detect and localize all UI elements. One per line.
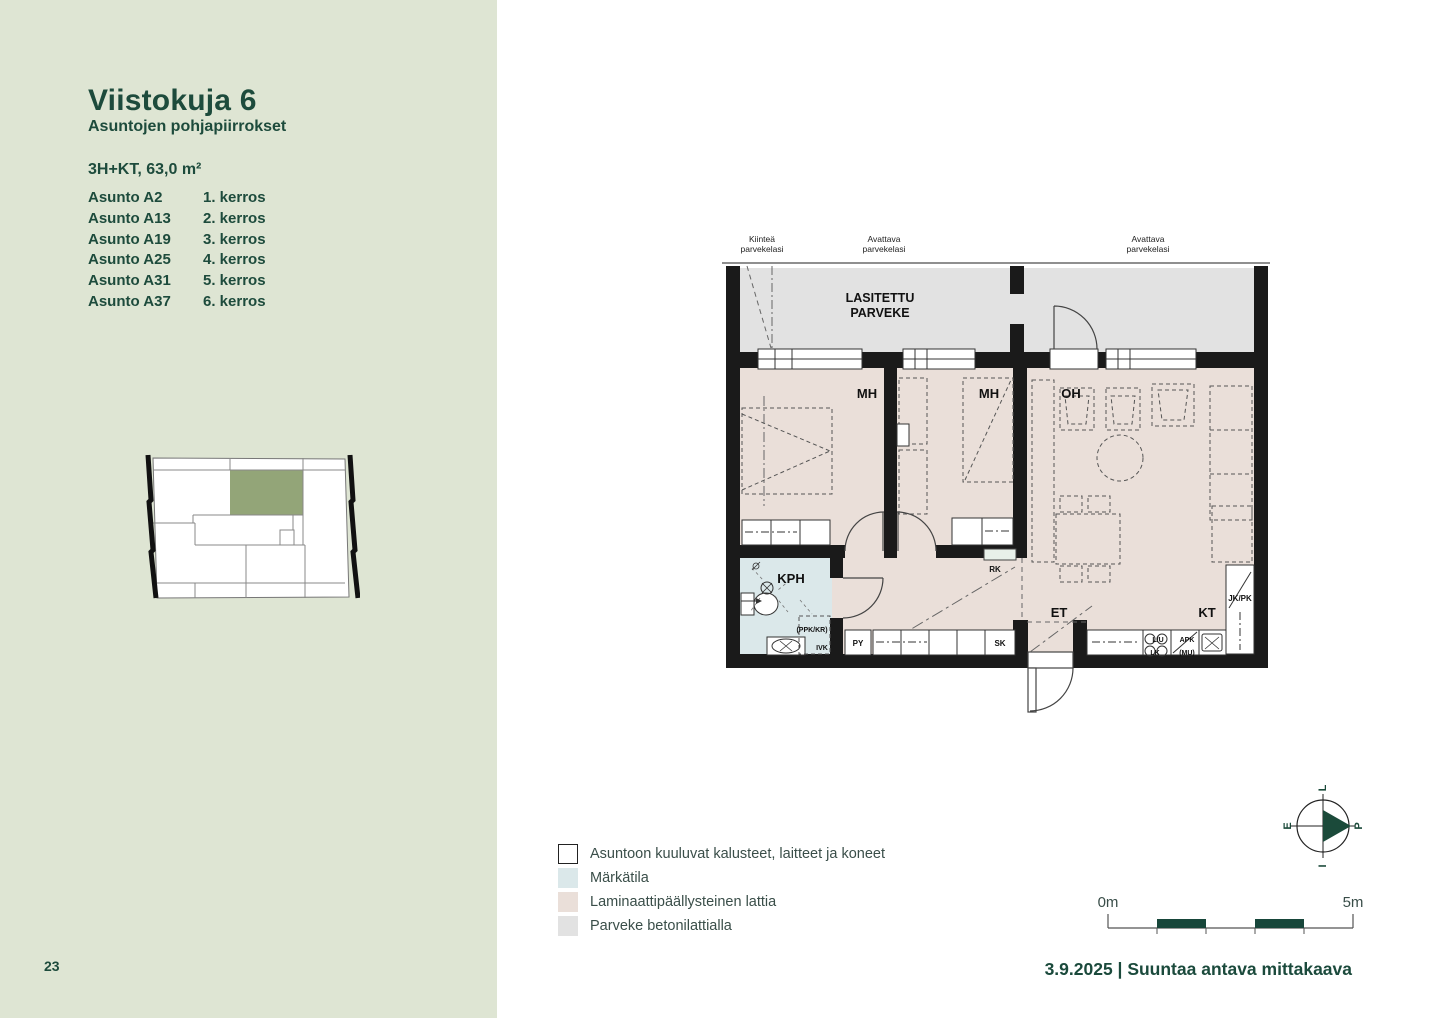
footer-date-note: 3.9.2025 | Suuntaa antava mittakaava	[1045, 959, 1352, 980]
page-title: Viistokuja 6	[88, 84, 257, 118]
mark-l-u: L/U	[1152, 637, 1163, 644]
apartment-floor: 6. kerros	[203, 292, 266, 313]
apartment-floor: 5. kerros	[203, 271, 266, 292]
room-label-living: OH	[1061, 386, 1081, 401]
balcony-label: LASITETTU	[846, 291, 915, 305]
page-subtitle: Asuntojen pohjapiirrokset	[88, 118, 286, 136]
legend-item: Asuntoon kuuluvat kalusteet, laitteet ja…	[558, 842, 885, 866]
legend-swatch-furniture	[558, 844, 578, 864]
mark-sk: SK	[994, 639, 1005, 648]
apartment-name: Asunto A37	[88, 292, 203, 313]
hall-cabinets	[845, 630, 1015, 655]
entry-door-threshold	[1028, 652, 1073, 668]
room-label-bedroom1: MH	[857, 386, 877, 401]
legend-label: Asuntoon kuuluvat kalusteet, laitteet ja…	[590, 846, 885, 862]
mark-apk: APK	[1180, 637, 1195, 644]
balcony-door-threshold	[1050, 349, 1098, 369]
apartment-name: Asunto A25	[88, 250, 203, 271]
glass-label: Kiinteä	[749, 234, 775, 244]
glass-label: parvekelasi	[863, 244, 906, 254]
mark-ppk-kr: (PPK/KR)	[796, 627, 827, 634]
legend: Asuntoon kuuluvat kalusteet, laitteet ja…	[558, 842, 885, 938]
compass-letter-south: E	[1283, 822, 1294, 829]
room-label-entry: ET	[1051, 605, 1068, 620]
legend-label: Märkätila	[590, 870, 649, 886]
mark-jk-pk: JK/PK	[1228, 594, 1252, 603]
floor-fills	[740, 268, 1254, 655]
apartment-name: Asunto A2	[88, 188, 203, 209]
sidebar: Viistokuja 6 Asuntojen pohjapiirrokset 3…	[0, 0, 497, 1018]
room-label-kitchen: KT	[1198, 605, 1215, 620]
apartment-floor: 3. kerros	[203, 230, 266, 251]
glass-label: Avattava	[868, 234, 901, 244]
electrical-panel-box	[984, 549, 1016, 560]
scale-segment	[1255, 919, 1304, 928]
key-plan-highlighted-unit	[230, 470, 303, 515]
apartment-name: Asunto A13	[88, 209, 203, 230]
balcony-floor-area	[740, 268, 1254, 352]
compass-letter-east: I	[1317, 864, 1329, 867]
legend-item: Parveke betonilattialla	[558, 914, 885, 938]
room-label-bathroom: KPH	[777, 571, 804, 586]
apartment-floor: 2. kerros	[203, 209, 266, 230]
apartment-type: 3H+KT, 63,0 m²	[88, 161, 201, 179]
mark-rk: RK	[989, 565, 1001, 574]
legend-item: Laminaattipäällysteinen lattia	[558, 890, 885, 914]
compass-letter-north: P	[1353, 822, 1363, 829]
mark-mu: (MU)	[1179, 650, 1195, 657]
mark-py: PY	[853, 639, 864, 648]
glass-label: Avattava	[1132, 234, 1165, 244]
toilet	[741, 593, 754, 615]
entry-door-leaf	[1028, 668, 1036, 712]
bedroom1-wardrobe	[742, 520, 830, 545]
legend-swatch-balcony	[558, 916, 578, 936]
balcony-label: PARVEKE	[850, 306, 909, 320]
apartment-floor: 4. kerros	[203, 250, 266, 271]
legend-swatch-wet-room	[558, 868, 578, 888]
legend-label: Laminaattipäällysteinen lattia	[590, 894, 776, 910]
brochure-page: Viistokuja 6 Asuntojen pohjapiirrokset 3…	[0, 0, 1440, 1018]
bedroom2-cabinet	[952, 518, 1013, 545]
glass-label: parvekelasi	[1127, 244, 1170, 254]
compass-letter-west: L	[1317, 784, 1329, 791]
scale-segment	[1157, 919, 1206, 928]
legend-label: Parveke betonilattialla	[590, 918, 732, 934]
key-plan-building-outline	[138, 450, 360, 602]
room-label-bedroom2: MH	[979, 386, 999, 401]
floor-plan: Kiinteä parvekelasi Avattava parvekelasi…	[710, 228, 1280, 728]
mark-ivk: IVK	[816, 645, 828, 652]
legend-swatch-laminate	[558, 892, 578, 912]
scale-five-label: 5m	[1343, 894, 1364, 911]
apartment-name: Asunto A19	[88, 230, 203, 251]
scale-bar: 0m 5m	[1095, 892, 1365, 940]
glass-label: parvekelasi	[741, 244, 784, 254]
mark-lk: LK	[1150, 650, 1159, 657]
legend-item: Märkätila	[558, 866, 885, 890]
apartment-name: Asunto A31	[88, 271, 203, 292]
apartment-list: Asunto A2 1. kerros Asunto A13 2. kerros…	[88, 188, 266, 313]
bedroom2-shelf	[897, 424, 909, 446]
apartment-floor: 1. kerros	[203, 188, 266, 209]
compass-rose-icon: P L E I	[1283, 780, 1363, 875]
page-number: 23	[44, 958, 60, 974]
scale-zero-label: 0m	[1098, 894, 1119, 911]
